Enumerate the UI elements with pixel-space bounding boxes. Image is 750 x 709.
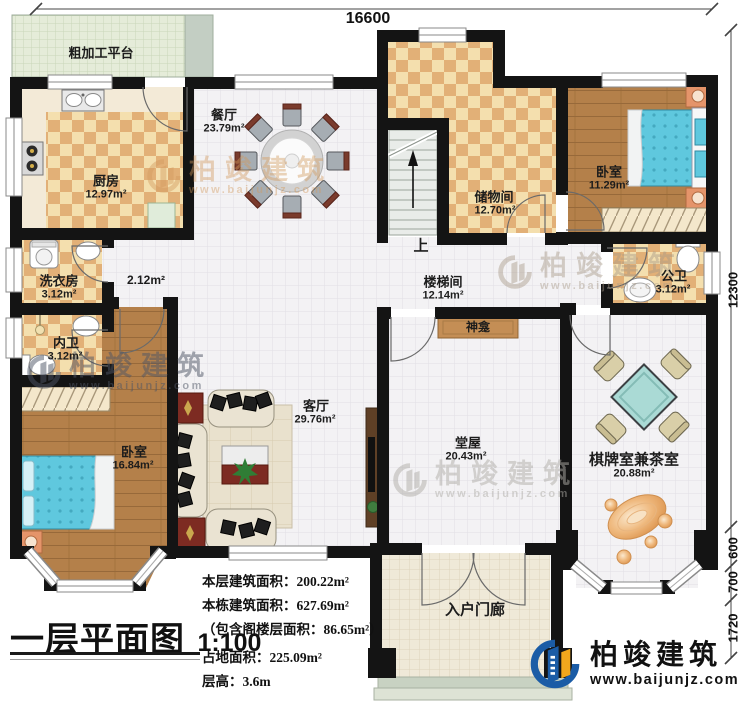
room-label-hall: 堂屋 bbox=[455, 437, 481, 450]
bed-left bbox=[20, 456, 114, 529]
wardrobe-right bbox=[602, 208, 708, 232]
kitchen-appliance bbox=[148, 203, 175, 228]
room-label-storage: 储物间 bbox=[474, 191, 513, 204]
inner-bath-sink bbox=[73, 316, 99, 336]
room-label-chess: 棋牌室兼茶室 bbox=[589, 453, 679, 468]
stat-floor-area: 本层建筑面积：200.22m² bbox=[202, 570, 349, 590]
stairs bbox=[389, 130, 437, 235]
room-area-storage: 12.70m² bbox=[475, 206, 516, 217]
dim-right-600: 600 bbox=[726, 537, 741, 559]
dim-right-height: 12300 bbox=[726, 272, 741, 308]
brand-name: 柏竣建筑 bbox=[590, 641, 739, 669]
room-label-bath-inner: 内卫 bbox=[53, 337, 79, 350]
stat-floor-height: 层高：3.6m bbox=[202, 670, 271, 690]
kitchen-sink bbox=[62, 90, 104, 111]
room-area-corridor: 2.12m² bbox=[127, 274, 165, 286]
stat-building-area: 本栋建筑面积：627.69m² bbox=[202, 594, 349, 614]
floor-plan-canvas: 柏竣建筑 www.baijunjz.com 柏竣建筑 www.baijunjz.… bbox=[0, 0, 750, 709]
room-label-dining: 餐厅 bbox=[211, 109, 237, 122]
title-underline bbox=[10, 652, 200, 660]
plan-drawing bbox=[0, 0, 750, 709]
room-area-bath-public: 3.12m² bbox=[656, 285, 691, 296]
room-area-stair-hall: 12.14m² bbox=[423, 291, 464, 302]
plant-icon bbox=[368, 502, 379, 513]
room-label-kitchen: 厨房 bbox=[93, 175, 119, 188]
room-area-dining: 23.79m² bbox=[204, 124, 245, 135]
room-area-bedroom-right: 11.29m² bbox=[589, 181, 629, 192]
room-label-shrine: 神龛 bbox=[466, 321, 490, 333]
room-area-bath-inner: 3.12m² bbox=[48, 352, 83, 363]
room-label-stair-hall: 楼梯间 bbox=[423, 276, 462, 289]
room-label-laundry: 洗衣房 bbox=[39, 275, 78, 288]
brand-website: www.baijunjz.com bbox=[590, 672, 739, 688]
coffee-table bbox=[222, 446, 268, 485]
room-area-hall: 20.43m² bbox=[446, 452, 487, 463]
dim-right-700: 700 bbox=[726, 571, 741, 593]
room-area-living: 29.76m² bbox=[295, 415, 336, 426]
stat-attic-area: （包含阁楼层面积：86.65m²） bbox=[202, 618, 383, 638]
brand-logo: 柏竣建筑 www.baijunjz.com bbox=[528, 636, 739, 692]
floors-layer bbox=[12, 15, 706, 700]
room-area-chess: 20.88m² bbox=[614, 469, 655, 480]
wardrobe-left bbox=[18, 387, 110, 411]
dim-top-width: 16600 bbox=[346, 10, 391, 28]
bed-right bbox=[628, 108, 710, 188]
brand-logo-icon bbox=[528, 636, 582, 692]
room-area-laundry: 3.12m² bbox=[42, 290, 77, 301]
room-area-kitchen: 12.97m² bbox=[86, 190, 127, 201]
room-area-bedroom-left: 16.84m² bbox=[113, 461, 154, 472]
room-label-bedroom-left: 卧室 bbox=[121, 446, 147, 459]
stove bbox=[22, 142, 43, 175]
dining-table bbox=[235, 104, 349, 218]
room-label-porch: 入户门廊 bbox=[445, 603, 505, 618]
tv-icon bbox=[368, 437, 375, 492]
room-label-platform: 粗加工平台 bbox=[68, 47, 133, 60]
sofa-set bbox=[171, 390, 292, 551]
laundry-sink bbox=[76, 242, 100, 260]
stat-land-area: 占地面积：225.09m² bbox=[202, 646, 322, 666]
room-label-living: 客厅 bbox=[303, 400, 329, 413]
room-label-bath-public: 公卫 bbox=[661, 270, 687, 283]
room-label-bedroom-right: 卧室 bbox=[596, 166, 622, 179]
stairs-up-label: 上 bbox=[413, 239, 428, 254]
washing-machine bbox=[30, 240, 58, 268]
